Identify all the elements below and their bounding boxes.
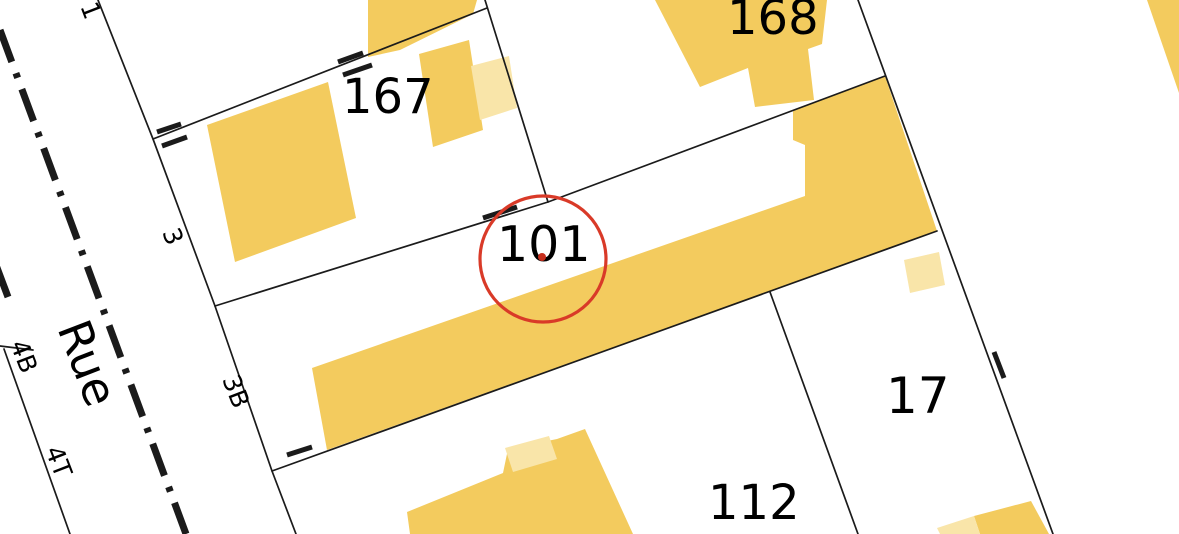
parcel-label-168: 168 — [727, 0, 819, 46]
parcel-label-112: 112 — [708, 475, 800, 531]
boundary-tick — [162, 137, 187, 146]
building-parcel-101-long — [312, 76, 937, 450]
cadastral-map[interactable]: 167 168 101 17 112 Rue 1 3 3B 4B 4T — [0, 0, 1179, 534]
parcel-label-101: 101 — [497, 216, 591, 273]
street-front-boundary-line — [98, 0, 296, 534]
street-axis-dashdot-line — [0, 30, 186, 534]
highlight-dot-parcel-101 — [538, 253, 546, 261]
left-boundary-line — [4, 349, 70, 534]
building-annex-parcel-17 — [904, 252, 945, 293]
building-bottom-right — [974, 501, 1049, 534]
boundary-tick — [157, 124, 181, 132]
street-axis-layer — [0, 30, 186, 534]
boundary-tick — [287, 447, 312, 455]
street-name-label: Rue — [47, 313, 129, 414]
building-annex-bottom-right — [937, 516, 980, 534]
cadastral-map-canvas: 167 168 101 17 112 Rue 1 3 3B 4B 4T — [0, 0, 1179, 534]
address-label-4t: 4T — [39, 442, 78, 482]
parcel-label-17: 17 — [886, 367, 950, 425]
street-axis-dash-left-edge — [0, 265, 8, 297]
address-label-1: 1 — [74, 0, 107, 23]
parcel-label-167: 167 — [342, 69, 434, 125]
building-top-right — [1147, 0, 1179, 93]
address-label-4b: 4B — [4, 336, 43, 377]
address-label-3: 3 — [156, 224, 189, 249]
boundary-parcel168-right — [858, 0, 1053, 534]
